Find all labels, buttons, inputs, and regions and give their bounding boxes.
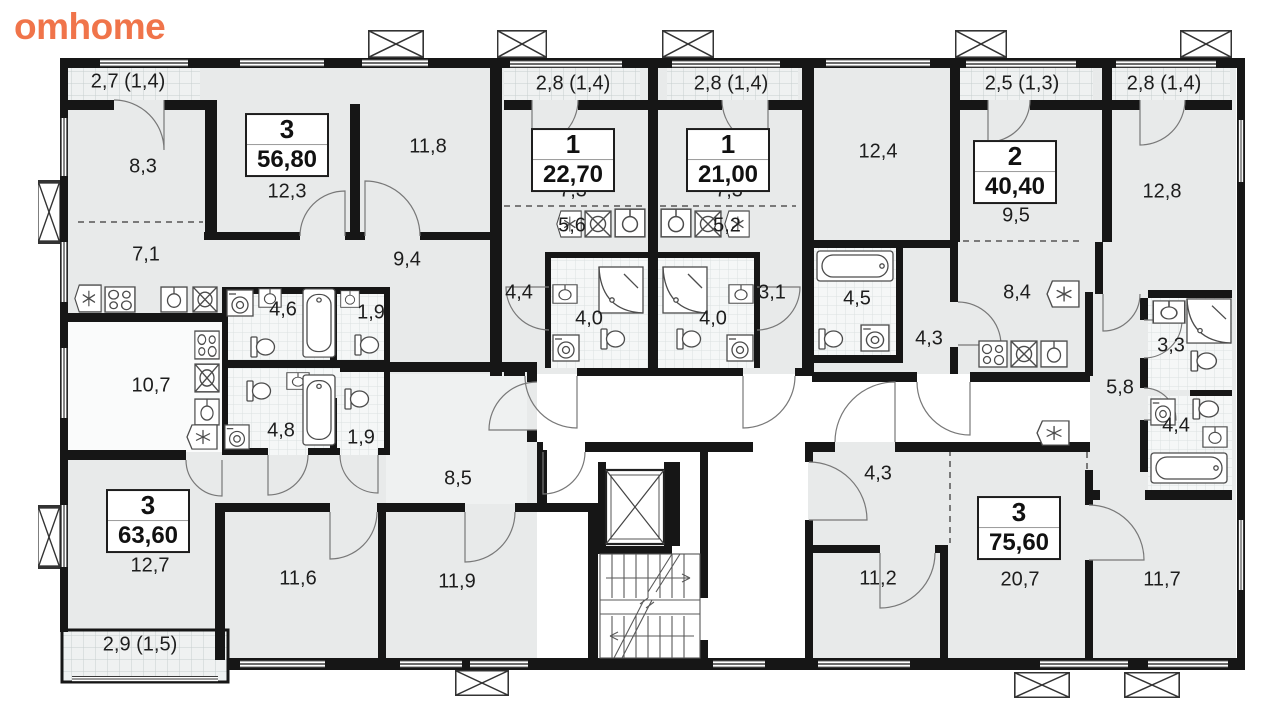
sink-icon (161, 287, 187, 312)
elevator-icon (606, 470, 664, 544)
sink-icon (729, 285, 753, 303)
vent-icon (1047, 281, 1079, 307)
sink-icon (1203, 427, 1227, 447)
vent-icon (1037, 421, 1069, 445)
hob-icon (195, 364, 219, 392)
toilet-icon (601, 329, 625, 349)
hob-icon (193, 287, 217, 312)
floor-plan-page: omhome 2,7 (1,4)8,312,311,82,8 (1,4)7,35… (0, 0, 1280, 728)
washer-icon (225, 425, 249, 449)
sink-icon (1041, 341, 1067, 367)
sink-icon (661, 209, 691, 237)
vent-icon (725, 211, 749, 237)
toilet-icon (677, 329, 701, 349)
bathtub-icon (303, 375, 335, 445)
washer-icon (727, 335, 753, 361)
corridor (537, 374, 1090, 442)
vent-icon (187, 425, 217, 449)
sink-icon (341, 291, 360, 308)
vestibule (700, 442, 808, 658)
hob-icon (585, 211, 611, 237)
stove-icon (195, 331, 219, 359)
shower-icon (1187, 299, 1231, 343)
shower-icon (599, 267, 643, 313)
washer-icon (861, 325, 889, 351)
sink-icon (553, 285, 577, 303)
sink-icon (259, 289, 281, 307)
shower-icon (663, 267, 707, 313)
vent-icon (75, 285, 101, 312)
sink-icon (615, 209, 645, 237)
stove-icon (105, 287, 135, 312)
washer-icon (227, 290, 253, 316)
vent-icon (557, 211, 581, 237)
hob-icon (1011, 341, 1037, 367)
stove-icon (979, 341, 1007, 367)
floor-plan (0, 0, 1280, 728)
logo: omhome (14, 6, 165, 48)
stairs-icon (600, 554, 700, 658)
toilet-icon (247, 381, 271, 401)
hob-icon (695, 211, 721, 237)
bathtub-icon (817, 251, 893, 281)
toilet-icon (819, 329, 843, 349)
bathtub-icon (303, 289, 335, 357)
washer-icon (1151, 399, 1175, 425)
toilet-icon (345, 389, 369, 409)
washer-icon (553, 335, 579, 361)
toilet-icon (1193, 399, 1218, 419)
toilet-icon (355, 335, 379, 355)
sink-icon (195, 399, 219, 425)
sink-icon (1153, 301, 1185, 323)
toilet-icon (1191, 351, 1216, 371)
toilet-icon (251, 337, 275, 357)
bathtub-icon (1151, 453, 1227, 483)
